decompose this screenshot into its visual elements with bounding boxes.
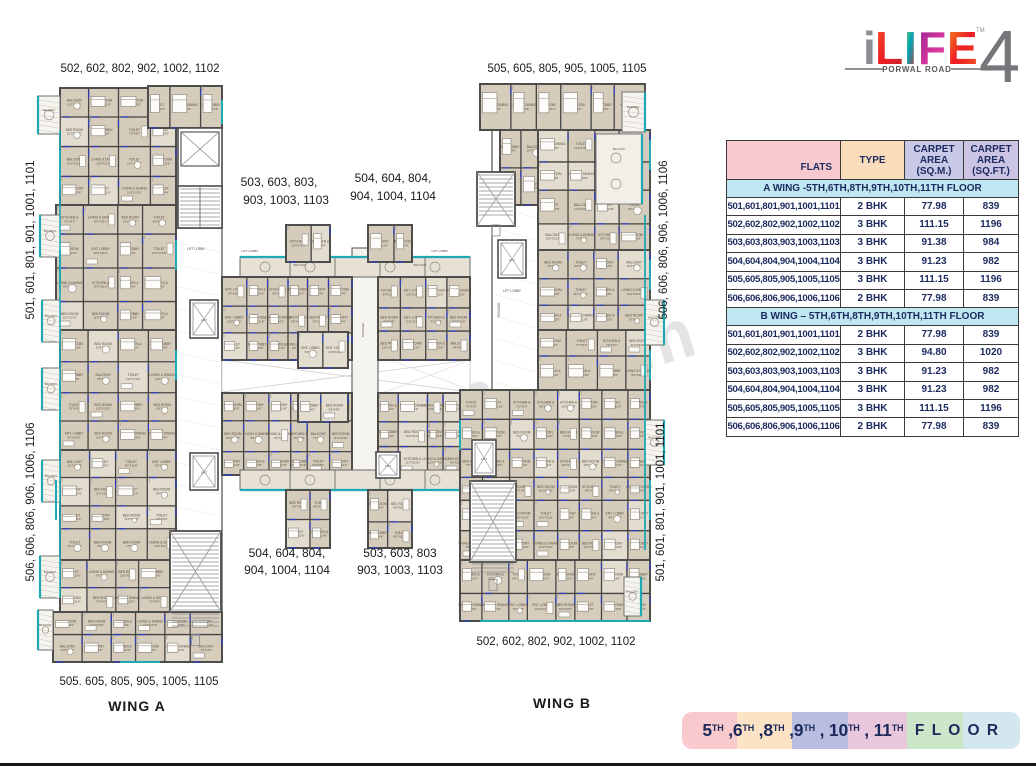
svg-text:11'0"X13'6": 11'0"X13'6" <box>631 343 646 347</box>
svg-text:LIFT: LIFT <box>201 471 207 475</box>
svg-text:903, 1003, 1103: 903, 1003, 1103 <box>357 563 443 577</box>
svg-text:11'0"X13'6": 11'0"X13'6" <box>96 407 111 411</box>
svg-text:LIFT: LIFT <box>481 457 487 461</box>
svg-text:WING B: WING B <box>533 695 591 711</box>
svg-text:11'0"X13'6": 11'0"X13'6" <box>406 461 421 465</box>
svg-text:LIFT: LIFT <box>385 464 391 468</box>
svg-text:BALCONY: BALCONY <box>45 382 58 386</box>
svg-text:BALCONY: BALCONY <box>39 623 52 627</box>
svg-text:11'0"X13'6": 11'0"X13'6" <box>152 251 167 255</box>
svg-text:7'0"X4'0": 7'0"X4'0" <box>68 407 80 411</box>
svg-text:LIFT LOBBY: LIFT LOBBY <box>187 247 206 251</box>
svg-text:503, 603, 803,: 503, 603, 803, <box>241 175 318 189</box>
svg-text:BALCONY: BALCONY <box>294 263 307 267</box>
svg-text:7'0"X4'0": 7'0"X4'0" <box>576 343 588 347</box>
svg-text:BALCONY: BALCONY <box>626 590 639 594</box>
svg-text:BALCONY: BALCONY <box>627 105 640 109</box>
svg-text:PASSAGE: PASSAGE <box>361 323 365 337</box>
svg-text:7'0"X4'0": 7'0"X4'0" <box>516 404 528 408</box>
svg-text:903, 1003, 1103: 903, 1003, 1103 <box>243 193 329 207</box>
svg-text:LIFT: LIFT <box>201 318 207 322</box>
svg-text:503, 603, 803: 503, 603, 803 <box>363 546 437 560</box>
svg-text:506, 606, 806, 906, 1006, 1106: 506, 606, 806, 906, 1006, 1106 <box>25 422 37 581</box>
svg-text:7'0"X4'0": 7'0"X4'0" <box>200 648 212 652</box>
svg-text:8'0"X10'0": 8'0"X10'0" <box>559 607 572 611</box>
svg-text:i: i <box>863 22 876 74</box>
svg-text:506, 606, 806, 906, 1006, 1106: 506, 606, 806, 906, 1006, 1106 <box>658 160 670 319</box>
svg-text:BALCONY: BALCONY <box>44 570 57 574</box>
svg-text:10'0"X11'6": 10'0"X11'6" <box>93 219 108 223</box>
svg-text:10'0"X11'6": 10'0"X11'6" <box>627 292 642 296</box>
svg-text:LIFT LOBBY: LIFT LOBBY <box>242 249 259 253</box>
svg-text:10'0"X11'6": 10'0"X11'6" <box>539 515 554 519</box>
svg-text:7'0"X4'0": 7'0"X4'0" <box>96 600 108 604</box>
svg-text:904, 1004, 1104: 904, 1004, 1104 <box>244 563 330 577</box>
svg-text:504, 604, 804,: 504, 604, 804, <box>249 546 326 560</box>
svg-text:7'0"X4'0": 7'0"X4'0" <box>129 132 141 136</box>
svg-text:LIFT: LIFT <box>509 258 515 262</box>
svg-text:BALCONY: BALCONY <box>44 229 57 233</box>
svg-text:7'0"X4'0": 7'0"X4'0" <box>64 219 76 223</box>
svg-text:11'0"X13'6": 11'0"X13'6" <box>334 436 349 440</box>
svg-text:8'0"X10'0": 8'0"X10'0" <box>67 435 80 439</box>
svg-text:PORWAL ROAD: PORWAL ROAD <box>882 65 951 74</box>
svg-text:10'0"X11'6": 10'0"X11'6" <box>546 237 561 241</box>
svg-text:LIFT LOBBY: LIFT LOBBY <box>432 249 449 253</box>
svg-text:505, 605, 805, 905, 1005, 1105: 505, 605, 805, 905, 1005, 1105 <box>487 63 646 75</box>
svg-text:8'0"X10'0": 8'0"X10'0" <box>125 464 138 468</box>
svg-text:501, 601, 801, 901, 1001, 1101: 501, 601, 801, 901, 1001, 1101 <box>25 160 37 319</box>
svg-text:904, 1004, 1104: 904, 1004, 1104 <box>350 189 436 203</box>
svg-text:10'0"X11'6": 10'0"X11'6" <box>406 434 421 438</box>
svg-text:WING A: WING A <box>108 698 166 714</box>
svg-text:502, 602, 802, 902, 1002, 1102: 502, 602, 802, 902, 1002, 1102 <box>476 636 635 648</box>
svg-text:504, 604, 804,: 504, 604, 804, <box>355 171 432 185</box>
svg-text:9'6"X4'6": 9'6"X4'6" <box>329 407 341 411</box>
svg-text:LIFT LOBBY: LIFT LOBBY <box>503 289 522 293</box>
svg-text:11'0"X13'6": 11'0"X13'6" <box>539 545 554 549</box>
svg-text:10'0"X11'6": 10'0"X11'6" <box>93 285 108 289</box>
svg-text:11'0"X13'6": 11'0"X13'6" <box>126 377 141 381</box>
svg-text:502, 602, 802, 902, 1002, 1102: 502, 602, 802, 902, 1002, 1102 <box>60 63 219 75</box>
svg-text:11'0"X13'6": 11'0"X13'6" <box>62 316 77 320</box>
svg-text:BALCONY: BALCONY <box>414 263 427 267</box>
svg-text:BALCONY: BALCONY <box>45 314 58 318</box>
svg-text:11'0"X13'6": 11'0"X13'6" <box>127 191 142 195</box>
svg-text:7'0"X4'0": 7'0"X4'0" <box>606 343 618 347</box>
svg-text:BALCONY: BALCONY <box>45 474 58 478</box>
svg-text:10'0"X11'6": 10'0"X11'6" <box>96 161 111 165</box>
svg-text:BALCONY: BALCONY <box>613 147 626 151</box>
svg-text:7'0"X4'0": 7'0"X4'0" <box>465 404 477 408</box>
svg-text:7'0"X4'0": 7'0"X4'0" <box>149 600 161 604</box>
svg-text:BALCONY: BALCONY <box>43 108 56 112</box>
svg-text:PASSAGE: PASSAGE <box>497 303 501 318</box>
svg-text:505. 605, 805, 905, 1005, 1105: 505. 605, 805, 905, 1005, 1105 <box>59 676 218 688</box>
svg-text:501, 601, 801, 901, 1001, 1101: 501, 601, 801, 901, 1001, 1101 <box>655 422 667 581</box>
svg-text:4: 4 <box>979 15 1020 98</box>
svg-text:10'0"X11'6": 10'0"X11'6" <box>93 251 108 255</box>
